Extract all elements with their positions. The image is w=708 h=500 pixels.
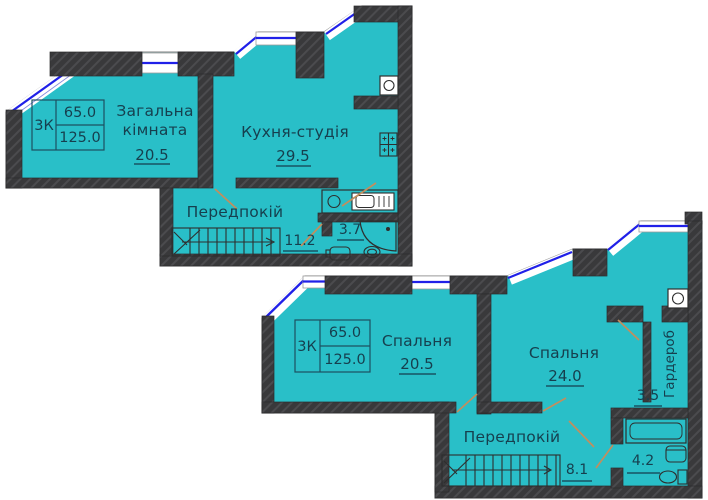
info-rooms-upper: 3К xyxy=(34,118,54,134)
room-label-hall-lower: Передпокій xyxy=(464,428,561,446)
area-value-bedroom1: 20.5 xyxy=(400,355,433,373)
area-value-living: 20.5 xyxy=(135,146,168,164)
room-label-bedroom2: Спальня xyxy=(529,344,599,362)
info-total-area-upper: 125.0 xyxy=(59,130,101,146)
window-top-a xyxy=(142,53,178,73)
window-top-b xyxy=(256,32,296,45)
room-label-bedroom1: Спальня xyxy=(382,332,452,350)
area-value-bedroom2: 24.0 xyxy=(548,367,581,385)
room-label-living-1: Загальна xyxy=(116,102,193,120)
room-label-kitchen: Кухня-студія xyxy=(241,123,349,141)
area-value-hall-upper: 11.2 xyxy=(284,233,315,249)
area-value-wardrobe: 3.5 xyxy=(637,388,659,404)
area-value-hall-lower: 8.1 xyxy=(566,462,588,478)
window-lower-c xyxy=(639,221,688,232)
washing-machine-icon xyxy=(380,76,398,95)
info-living-area-lower: 65.0 xyxy=(329,325,361,341)
info-living-area-upper: 65.0 xyxy=(64,105,96,121)
washing-machine-icon-lower xyxy=(668,289,688,308)
window-lower-b xyxy=(412,276,450,289)
area-value-bath-upper: 3.7 xyxy=(339,222,361,238)
area-value-bath-lower: 4.2 xyxy=(632,453,654,469)
upper-plan: 3К 65.0 125.0 Загальна кімната 20.5 Кухн… xyxy=(6,6,412,266)
room-label-hall-upper: Передпокій xyxy=(187,203,284,221)
info-rooms-lower: 3К xyxy=(297,339,317,355)
info-total-area-lower: 125.0 xyxy=(324,352,366,368)
room-label-wardrobe: Гардероб xyxy=(662,330,678,398)
floor-plan-canvas: 3К 65.0 125.0 Загальна кімната 20.5 Кухн… xyxy=(0,0,708,500)
area-value-kitchen: 29.5 xyxy=(276,147,309,165)
window-lower-a xyxy=(303,276,327,288)
floor-plan-page: 3К 65.0 125.0 Загальна кімната 20.5 Кухн… xyxy=(0,0,708,500)
room-label-living-2: кімната xyxy=(123,121,188,139)
